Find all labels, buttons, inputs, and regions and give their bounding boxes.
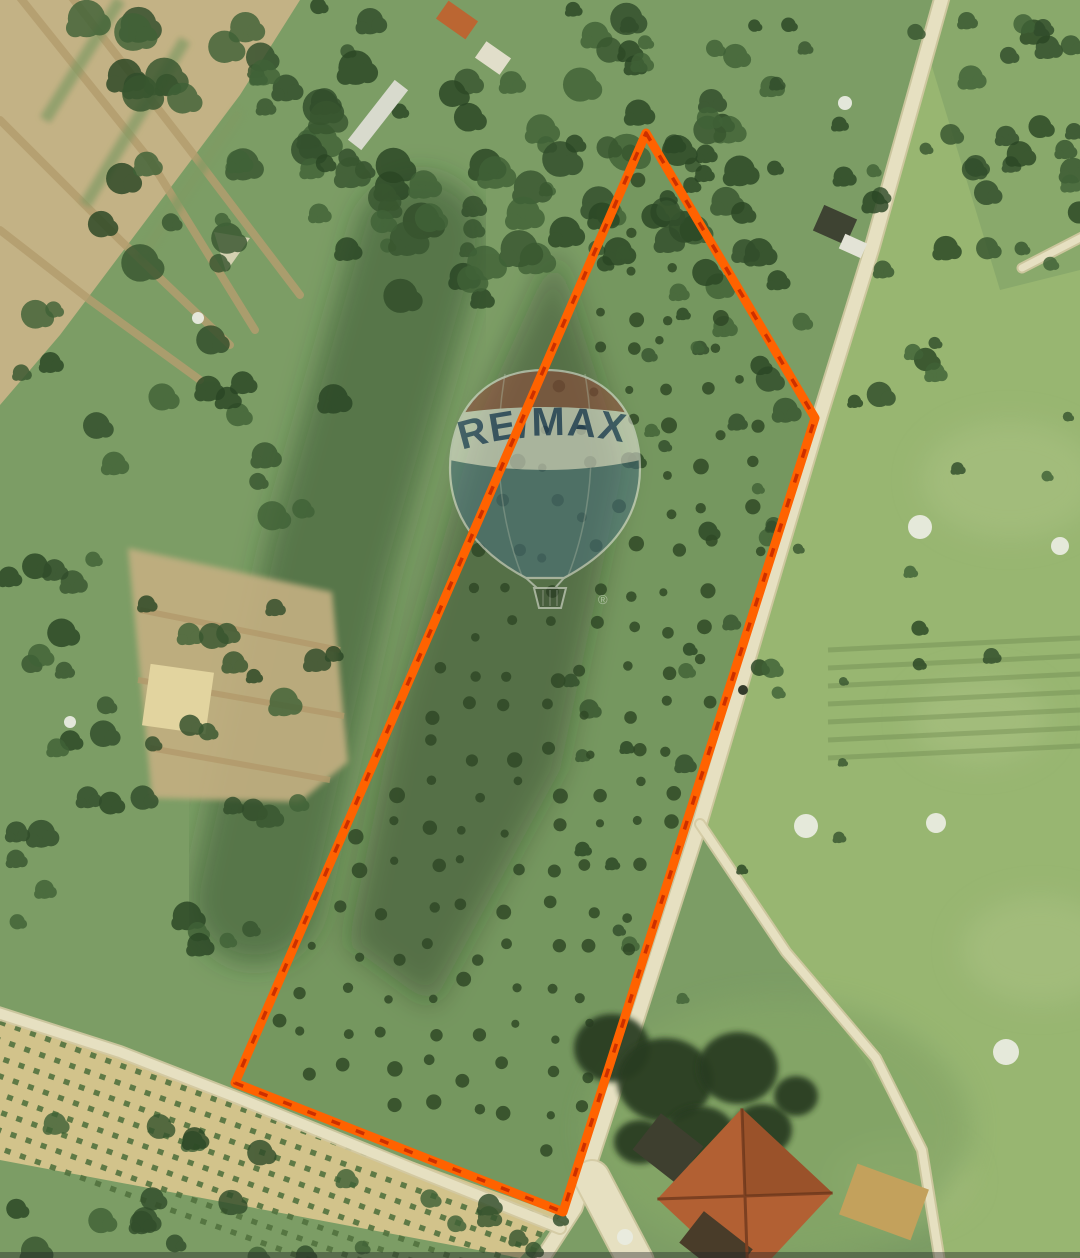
listing-photo: RE/MAX®	[0, 0, 1080, 1258]
satellite-map-image: RE/MAX®	[0, 0, 1080, 1258]
registered-mark: ®	[598, 592, 608, 607]
photo-edge	[0, 1252, 1080, 1258]
edge	[0, 1252, 1080, 1258]
tint	[0, 0, 1080, 1258]
